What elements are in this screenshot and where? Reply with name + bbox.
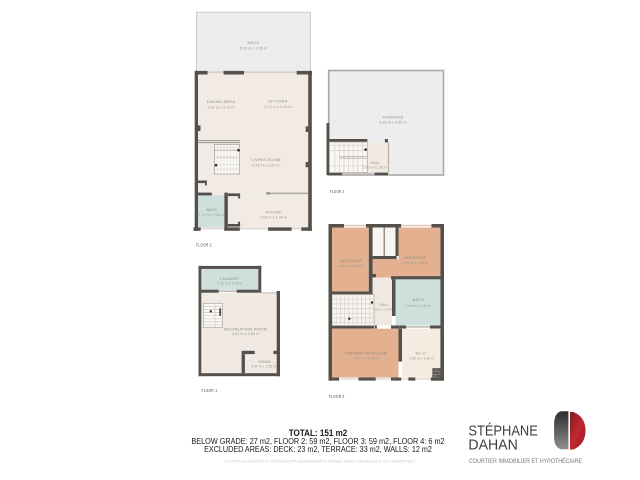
svg-text:3.05 m x 2.44 m: 3.05 m x 2.44 m xyxy=(405,304,431,308)
svg-text:BATH: BATH xyxy=(206,208,217,212)
svg-text:3.44 m x 1.55 m: 3.44 m x 1.55 m xyxy=(251,364,276,368)
svg-text:FLOOR PLAN CREATED BY CUBICASA: FLOOR PLAN CREATED BY CUBICASA APP. MEAS… xyxy=(225,460,415,464)
svg-text:2.16 m x 1.45 m: 2.16 m x 1.45 m xyxy=(217,282,242,286)
svg-text:6.64 m x 4.95 m: 6.64 m x 4.95 m xyxy=(379,120,406,124)
svg-text:4.51 m x 3.96 m: 4.51 m x 3.96 m xyxy=(353,356,379,360)
svg-text:3.80 m x 3.19 m: 3.80 m x 3.19 m xyxy=(207,106,234,110)
svg-text:3.73 m x 3.19 m: 3.73 m x 3.19 m xyxy=(264,105,291,109)
svg-text:3.55 m x 1.98 m: 3.55 m x 1.98 m xyxy=(409,356,434,360)
svg-text:6.63 m x 3.65 m: 6.63 m x 3.65 m xyxy=(240,46,267,50)
svg-text:KITCHEN: KITCHEN xyxy=(268,99,287,104)
svg-text:4.69 m x 1.94 m: 4.69 m x 1.94 m xyxy=(260,215,287,219)
svg-text:HALL: HALL xyxy=(371,161,381,165)
svg-text:BEDROOM: BEDROOM xyxy=(340,259,361,263)
svg-text:LAUNDRY: LAUNDRY xyxy=(220,277,240,281)
svg-text:RECREATION ROOM: RECREATION ROOM xyxy=(224,327,267,332)
svg-text:FLOOR 3: FLOOR 3 xyxy=(329,394,345,399)
svg-text:FLOOR 4: FLOOR 4 xyxy=(330,189,345,194)
svg-text:HALL: HALL xyxy=(379,303,388,307)
svg-text:W.I.C.: W.I.C. xyxy=(416,352,428,356)
svg-text:COURTIER IMMOBILIER ET HYPOTHÉ: COURTIER IMMOBILIER ET HYPOTHÉCAIRE xyxy=(469,456,583,465)
svg-text:DECK: DECK xyxy=(247,40,259,45)
svg-text:1.71 m x 1.84 m: 1.71 m x 1.84 m xyxy=(199,213,224,217)
svg-text:ROOM: ROOM xyxy=(258,360,270,364)
svg-text:LIVING ROOM: LIVING ROOM xyxy=(251,157,280,162)
svg-text:FLOOR 2: FLOOR 2 xyxy=(196,242,212,247)
svg-text:2.96 m x 1.86 m: 2.96 m x 1.86 m xyxy=(363,166,388,170)
svg-text:FOYER: FOYER xyxy=(266,209,281,214)
svg-text:EXCLUDED AREAS: DECK: 23 m2, T: EXCLUDED AREAS: DECK: 23 m2, TERRACE: 33… xyxy=(204,445,432,454)
svg-text:FLOOR 1: FLOOR 1 xyxy=(202,388,218,393)
svg-text:6.55 m x 3.87 m: 6.55 m x 3.87 m xyxy=(252,163,279,167)
svg-text:DAHAN: DAHAN xyxy=(468,437,517,453)
svg-text:4.81 m x 4.80 m: 4.81 m x 4.80 m xyxy=(232,332,259,336)
svg-text:4.09 m x 3.36 m: 4.09 m x 3.36 m xyxy=(402,261,428,265)
svg-text:TERRACE: TERRACE xyxy=(383,115,404,120)
svg-text:DINING AREA: DINING AREA xyxy=(207,99,236,104)
svg-text:PRIMARY BEDROOM: PRIMARY BEDROOM xyxy=(345,352,387,356)
svg-text:BEDROOM: BEDROOM xyxy=(404,256,425,260)
svg-text:3.16 m x 3.91 m: 3.16 m x 3.91 m xyxy=(338,264,364,268)
svg-text:BATH: BATH xyxy=(413,298,424,302)
